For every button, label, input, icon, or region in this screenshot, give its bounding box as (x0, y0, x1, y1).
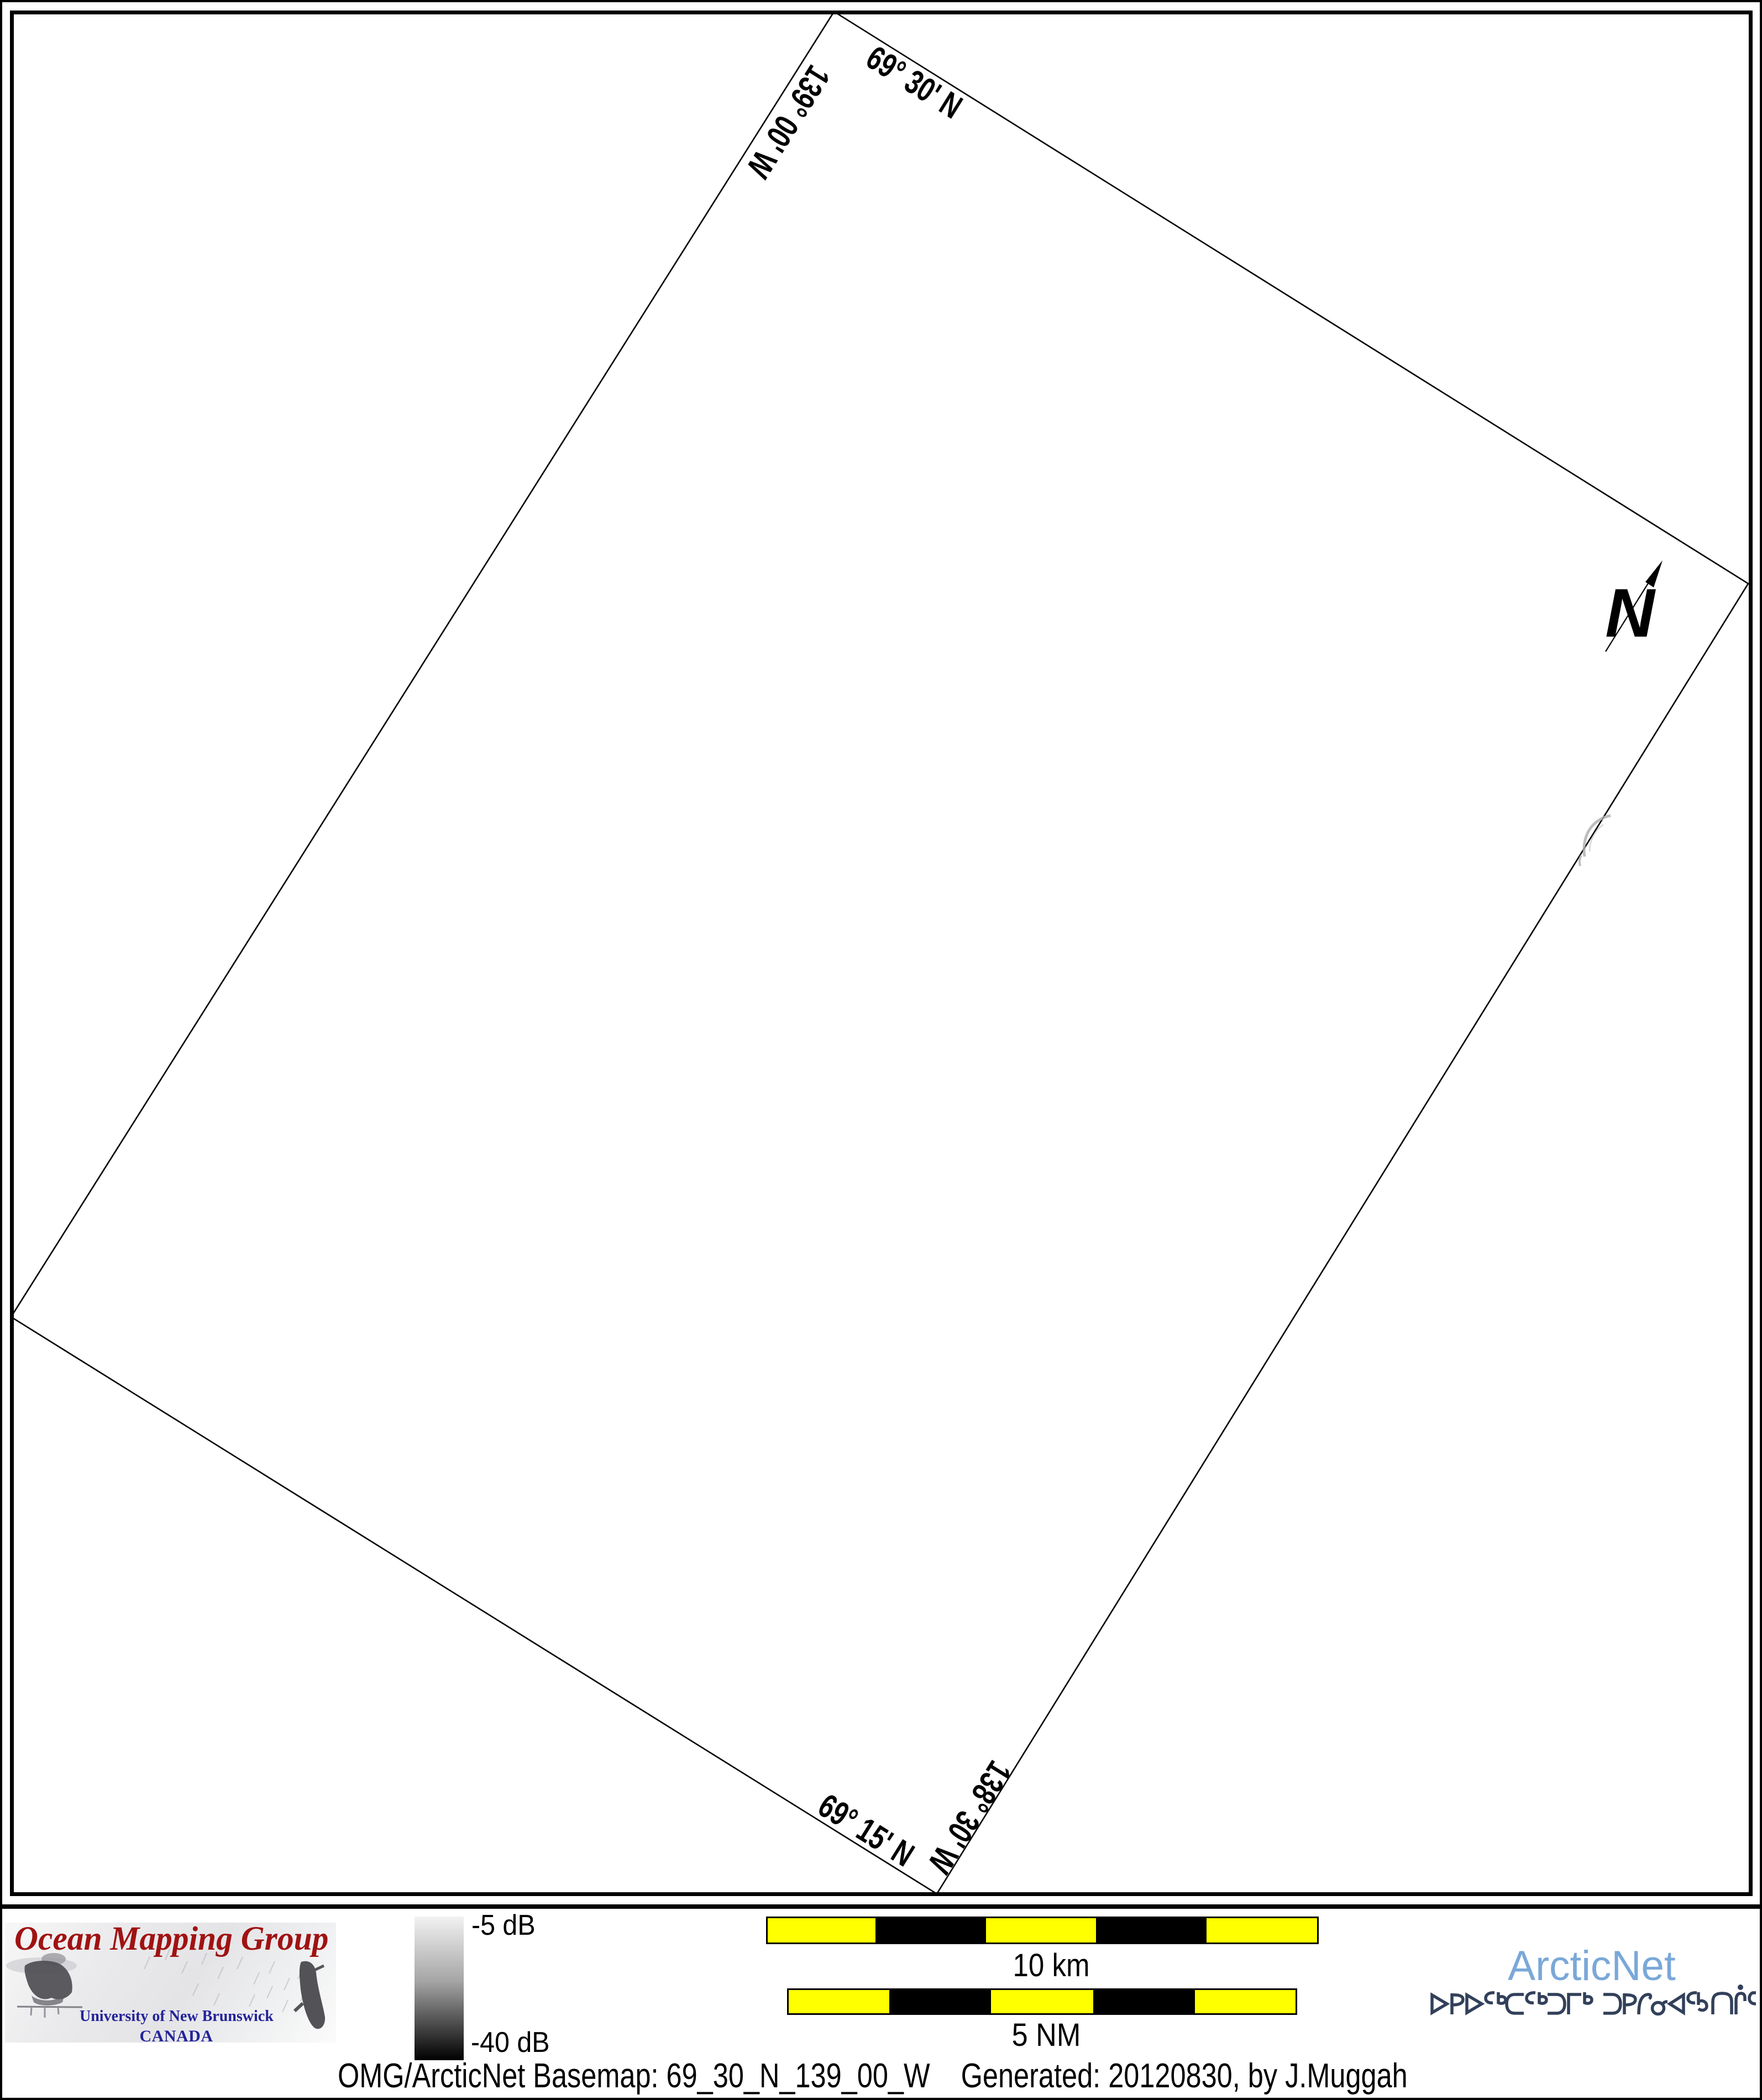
svg-text:69° 30' N: 69° 30' N (860, 39, 969, 126)
svg-text:N: N (1605, 575, 1656, 652)
svg-text:138° 30' W: 138° 30' W (921, 1755, 1019, 1880)
svg-text:139° 00' W: 139° 00' W (740, 59, 837, 185)
svg-text:69° 15' N: 69° 15' N (812, 1787, 921, 1874)
